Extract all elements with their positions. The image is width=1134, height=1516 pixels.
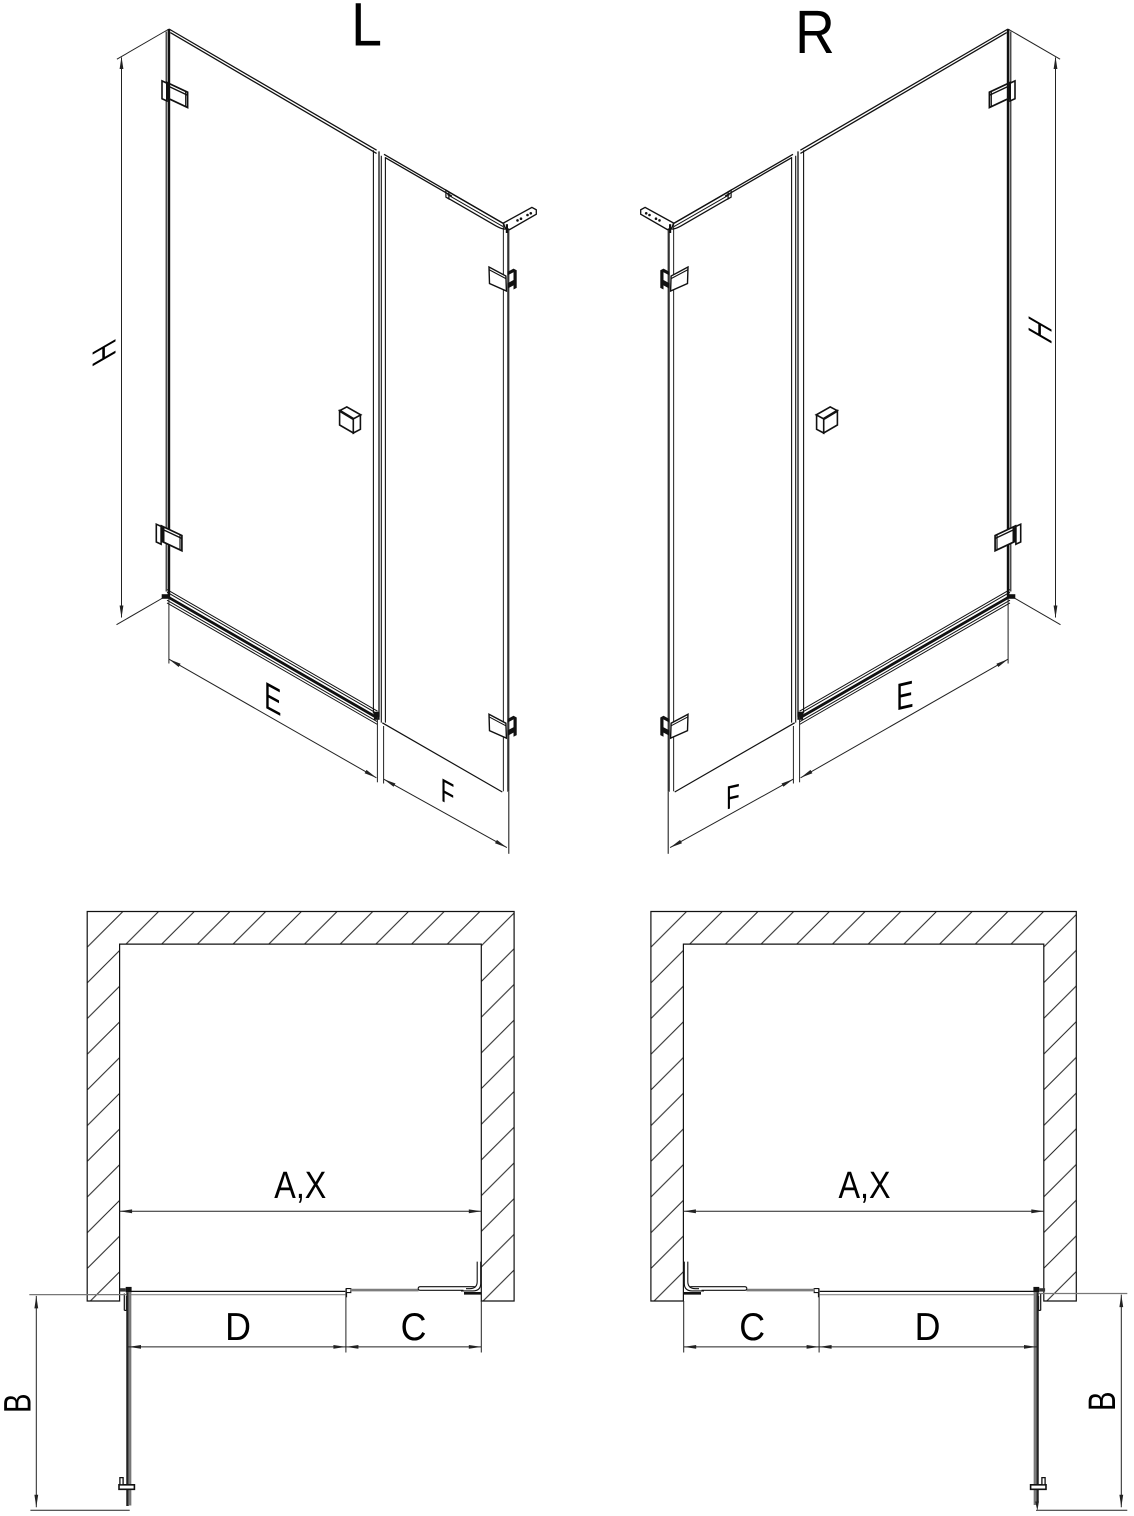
svg-text:F: F	[441, 771, 455, 815]
svg-text:B: B	[0, 1394, 39, 1414]
svg-text:D: D	[915, 1305, 941, 1348]
svg-text:R: R	[795, 0, 835, 67]
svg-text:F: F	[726, 777, 740, 817]
svg-text:D: D	[225, 1305, 251, 1348]
svg-text:A,X: A,X	[274, 1165, 326, 1207]
svg-text:C: C	[739, 1305, 765, 1348]
svg-text:B: B	[1081, 1392, 1124, 1412]
svg-text:E: E	[896, 672, 913, 719]
svg-text:A,X: A,X	[838, 1165, 890, 1207]
svg-text:C: C	[401, 1305, 427, 1348]
svg-text:L: L	[351, 0, 382, 59]
